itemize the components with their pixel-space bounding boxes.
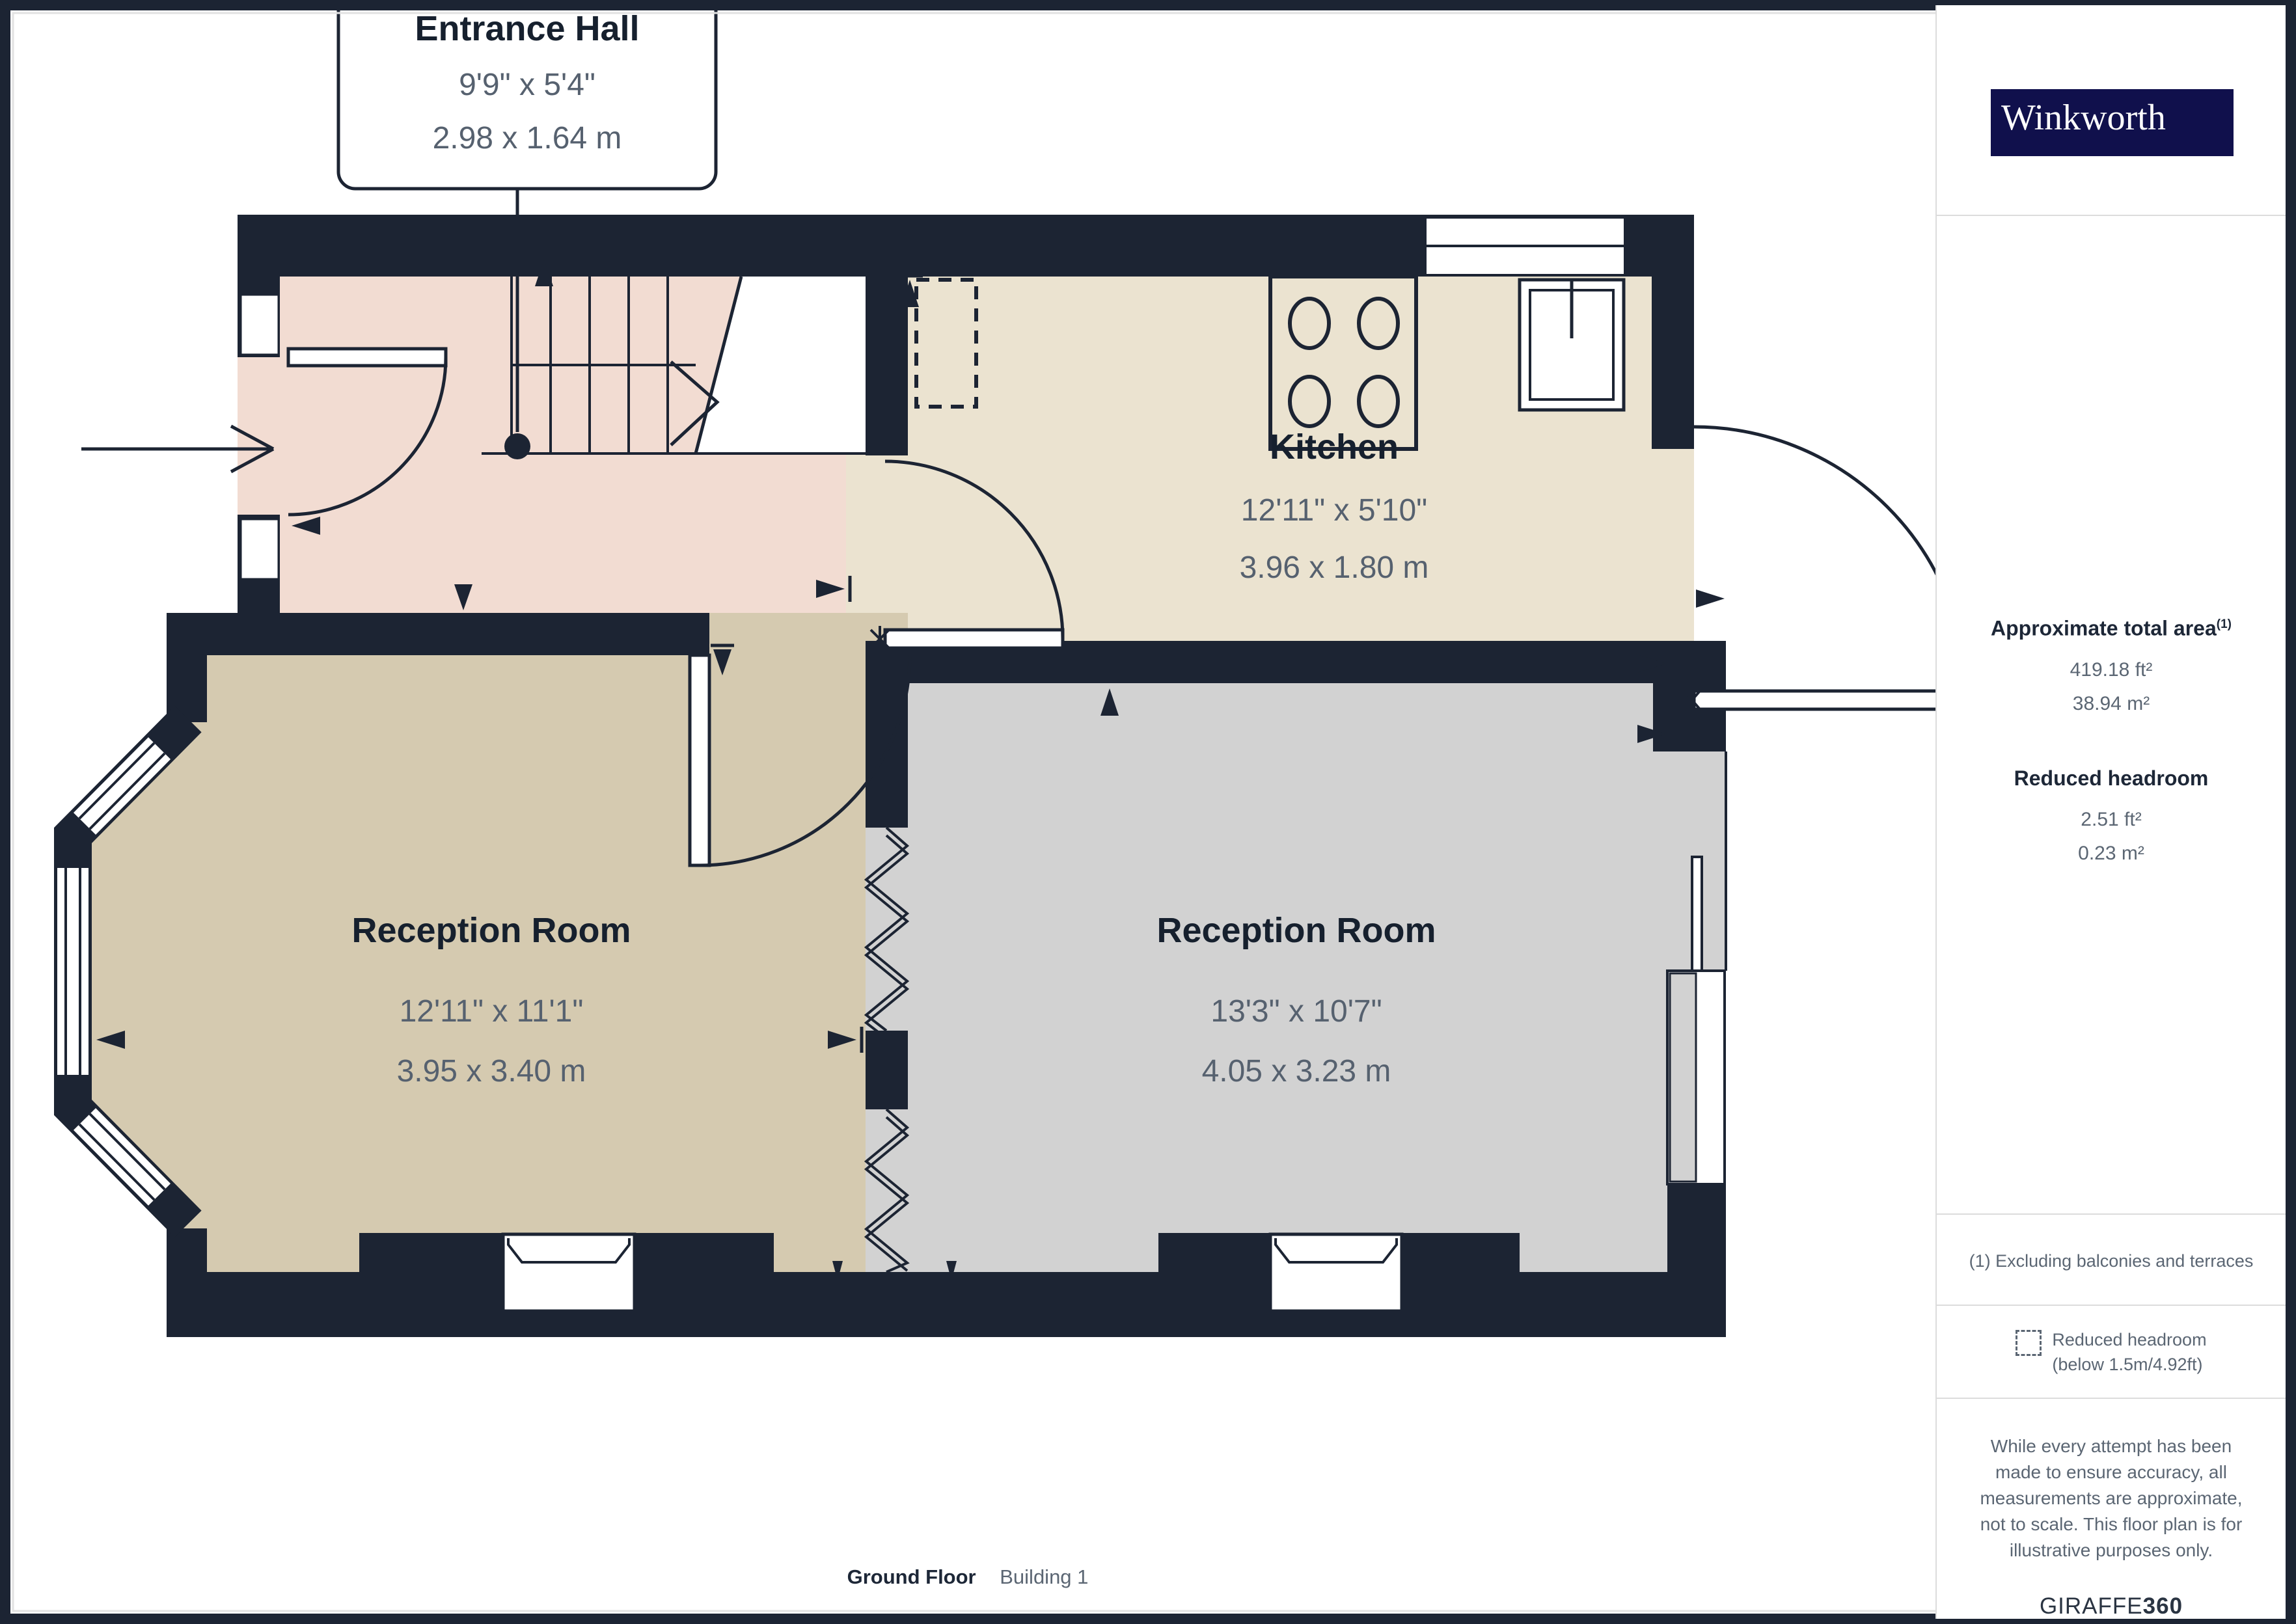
hall-window-upper: [241, 295, 279, 355]
fireplace-left: [503, 1234, 635, 1311]
sidebar: Winkworth Approximate total area(1) 419.…: [1935, 5, 2286, 1619]
kitchen-label: Kitchen: [1270, 427, 1399, 467]
reduced-headroom-metric: 0.23 m²: [1937, 837, 2286, 871]
legend-line2: (below 1.5m/4.92ft): [2052, 1355, 2202, 1374]
marker-right-kitchen: [1696, 589, 1725, 608]
stove: [1270, 277, 1416, 449]
legend-block: Reduced headroom (below 1.5m/4.92ft): [1937, 1327, 2286, 1377]
total-area-metric: 38.94 m²: [1937, 687, 2286, 721]
sidebar-divider-3: [1937, 1305, 2286, 1306]
callout-anchor-dot: [504, 433, 530, 459]
disclaimer-block: While every attempt has been made to ens…: [1937, 1433, 2286, 1619]
legend-line1: Reduced headroom: [2052, 1330, 2206, 1349]
reception-left-dims-metric: 3.95 x 3.40 m: [397, 1054, 586, 1089]
callout-dims-imperial: 9'9" x 5'4": [459, 68, 595, 102]
fireplace-right: [1270, 1234, 1402, 1311]
floor-label: Ground Floor: [847, 1565, 976, 1588]
brand-logo: Winkworth: [1991, 89, 2234, 156]
total-area-block: Approximate total area(1) 419.18 ft² 38.…: [1937, 612, 2286, 721]
hall-window-lower: [241, 519, 279, 579]
footnote-mark: (1): [2217, 617, 2232, 631]
kitchen-dims-metric: 3.96 x 1.80 m: [1240, 550, 1429, 585]
floorplan-screenshot: Kitchen 12'11" x 5'10" 3.96 x 1.80 m Rec…: [0, 0, 2296, 1624]
callout-room-name: Entrance Hall: [415, 9, 639, 48]
reception-left-label: Reception Room: [351, 911, 631, 950]
footnote-text: (1) Excluding balconies and terraces: [1937, 1251, 2286, 1271]
provider-logo: GIRAFFE360: [1937, 1593, 2286, 1619]
reception-right-dims-imperial: 13'3" x 10'7": [1210, 994, 1382, 1029]
kitchen-dims-imperial: 12'11" x 5'10": [1241, 493, 1427, 528]
disclaimer-text: While every attempt has been made to ens…: [1971, 1433, 2251, 1563]
building-label: Building 1: [1000, 1565, 1088, 1588]
sidebar-divider-2: [1937, 1213, 2286, 1215]
plan-footer: Ground Floor Building 1: [0, 1565, 1935, 1589]
reception-right-floor: [866, 683, 1726, 1272]
reception-left-dims-imperial: 12'11" x 11'1": [400, 994, 584, 1029]
reduced-headroom-block: Reduced headroom 2.51 ft² 0.23 m²: [1937, 765, 2286, 871]
reduced-headroom-heading: Reduced headroom: [1937, 765, 2286, 791]
total-area-heading: Approximate total area(1): [1937, 612, 2286, 642]
sink: [1520, 280, 1624, 410]
brand-name: Winkworth: [2001, 98, 2166, 138]
reception-right-dims-metric: 4.05 x 3.23 m: [1202, 1054, 1391, 1089]
sidebar-divider-1: [1937, 215, 2286, 216]
kitchen-exterior-door: [1684, 427, 1967, 713]
sidebar-divider-4: [1937, 1398, 2286, 1399]
reduced-headroom-imperial: 2.51 ft²: [1937, 803, 2286, 837]
reception-right-label: Reception Room: [1156, 911, 1436, 950]
callout-dims-metric: 2.98 x 1.64 m: [433, 121, 622, 156]
total-area-imperial: 419.18 ft²: [1937, 653, 2286, 687]
reduced-headroom-icon: [2016, 1330, 2042, 1356]
